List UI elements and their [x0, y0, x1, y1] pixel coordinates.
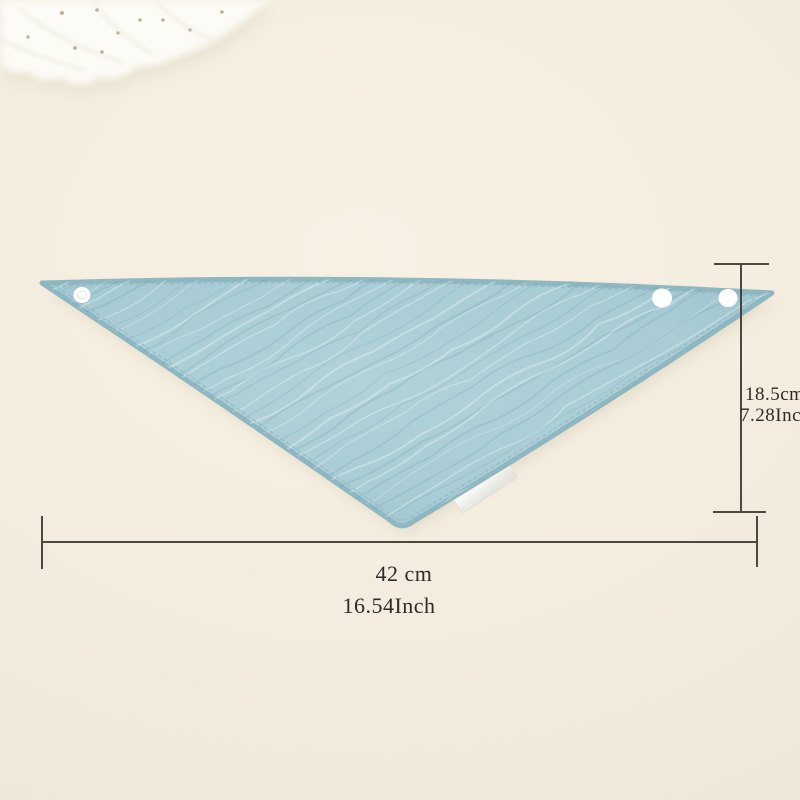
snap-button-left	[74, 287, 91, 303]
height-label-inch: 7.28Inch	[740, 405, 800, 427]
width-label-inch: 16.54Inch	[299, 593, 479, 619]
tulle-fabric	[0, 0, 271, 93]
product-photo-scene: 42 cm 16.54Inch 18.5cm 7.28Inch	[0, 0, 800, 800]
width-label-cm: 42 cm	[314, 561, 494, 587]
bandana-bib	[0, 0, 800, 800]
height-label-cm: 18.5cm	[745, 384, 800, 406]
bib-photo-canvas	[0, 0, 800, 800]
snap-button-right-outer	[719, 289, 738, 307]
snap-button-right-inner	[652, 289, 672, 308]
